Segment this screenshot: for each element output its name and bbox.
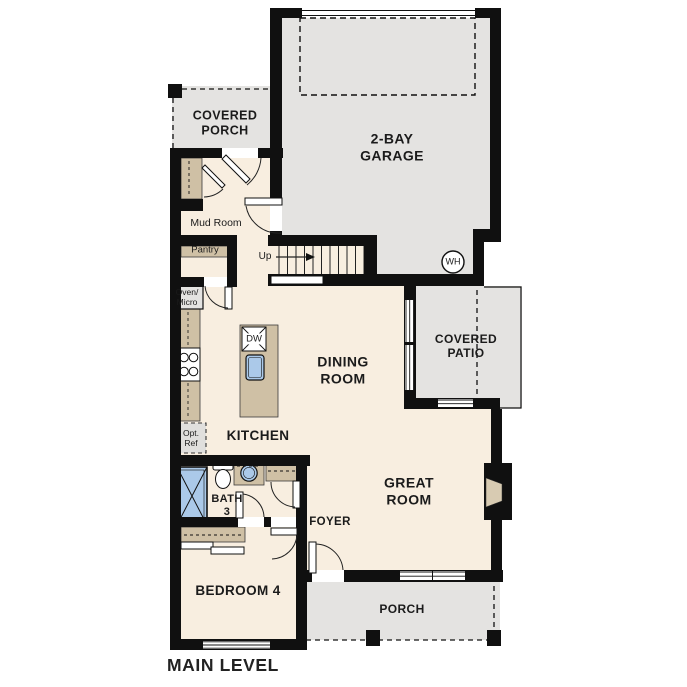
toilet-bowl bbox=[216, 470, 231, 489]
wall-garage-right bbox=[490, 8, 501, 240]
covered-patio-slab bbox=[404, 286, 522, 408]
wall-stair-east bbox=[364, 238, 377, 278]
wall-bath-bottom bbox=[170, 517, 238, 527]
wall-mud-top bbox=[258, 148, 283, 158]
page-title: MAIN LEVEL bbox=[167, 655, 279, 676]
great-room-floor bbox=[404, 398, 495, 582]
front-door-opening bbox=[312, 570, 344, 582]
pantry-opening bbox=[204, 277, 227, 287]
wall-stair-top bbox=[268, 235, 377, 246]
optional-refrigerator bbox=[177, 423, 206, 453]
burner bbox=[189, 353, 198, 362]
mud-closet-bench bbox=[181, 158, 202, 199]
wall-west-exterior bbox=[170, 148, 181, 650]
pantry-door-leaf bbox=[225, 287, 232, 309]
bedroom-closet-shelf bbox=[181, 527, 245, 542]
closet-slider-door bbox=[181, 542, 213, 549]
pantry-shelf bbox=[181, 246, 228, 257]
floor-plan-page: COVERED PORCH 2-BAY GARAGE Mud Room Pant… bbox=[0, 0, 687, 687]
wall-great-east-lower bbox=[491, 518, 502, 582]
closet-slider-door bbox=[211, 547, 244, 554]
bath-door-leaf bbox=[236, 492, 243, 518]
garage-door-opening bbox=[302, 8, 475, 18]
water-heater-circle bbox=[442, 251, 464, 273]
wall-bath-bottom bbox=[264, 517, 271, 527]
garage-entry-door-leaf bbox=[245, 198, 282, 205]
wall-closet-stub bbox=[170, 199, 203, 211]
porch-post bbox=[487, 630, 501, 646]
wall-pantry-right bbox=[227, 238, 237, 287]
wall-garage-left bbox=[270, 8, 282, 200]
front-door-leaf bbox=[309, 542, 316, 573]
wall-great-east-upper bbox=[491, 409, 502, 466]
wall-bedroom-east bbox=[296, 517, 307, 650]
stair-railing bbox=[271, 276, 323, 284]
front-porch-slab bbox=[300, 582, 500, 640]
porch-post bbox=[366, 630, 380, 646]
wall-pantry-bottom bbox=[170, 277, 204, 287]
burner bbox=[189, 367, 198, 376]
floor-plan-drawing bbox=[0, 0, 687, 687]
garage-slab bbox=[280, 14, 492, 236]
wall-pantry-top bbox=[170, 235, 237, 246]
wall-kitchen-bath bbox=[170, 455, 310, 466]
bedroom-opening bbox=[271, 517, 296, 527]
porch-post bbox=[168, 84, 182, 98]
covered-porch-slab bbox=[172, 86, 272, 156]
foyer-closet-door-leaf bbox=[293, 481, 300, 508]
bedroom-door-leaf bbox=[271, 528, 297, 535]
